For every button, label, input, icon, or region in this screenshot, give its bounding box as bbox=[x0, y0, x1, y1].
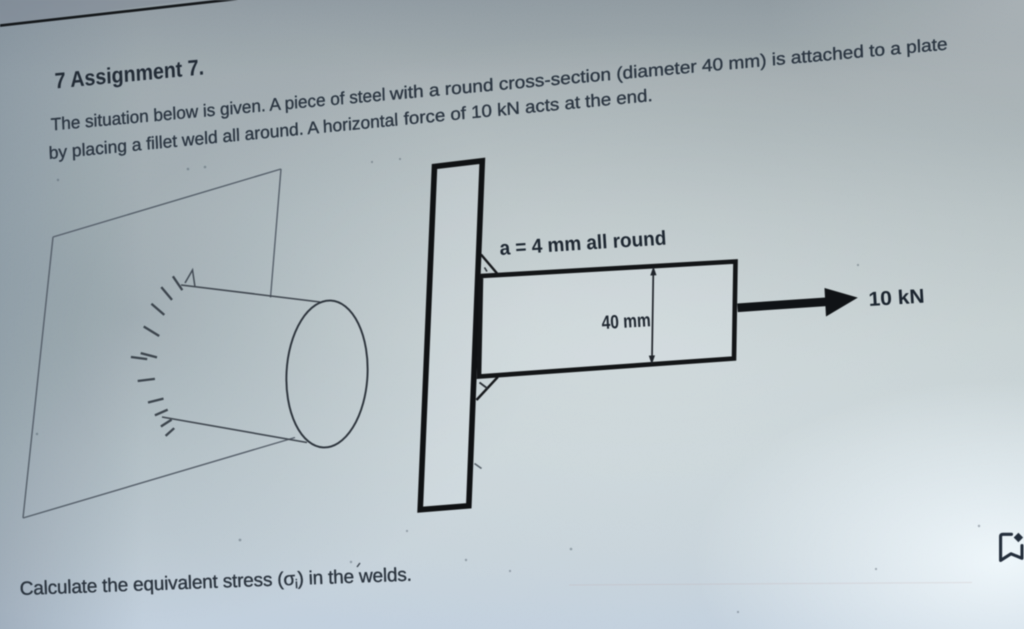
svg-text:40 mm: 40 mm bbox=[601, 310, 651, 334]
svg-text:10 kN: 10 kN bbox=[868, 286, 925, 311]
